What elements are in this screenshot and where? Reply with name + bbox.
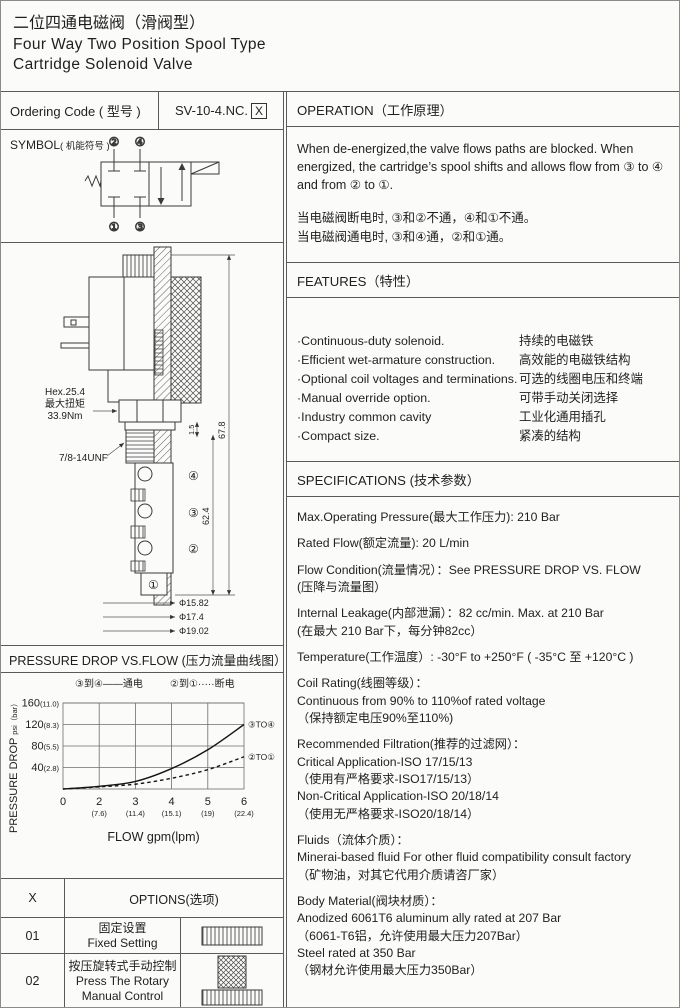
x-tick-lpm-label: (7.6) xyxy=(91,809,107,818)
page-title-en-line1: Four Way Two Position Spool Type xyxy=(13,35,679,55)
option-icon-cell-01 xyxy=(181,918,283,953)
option-code-01: 01 xyxy=(1,918,65,953)
drawing-port-2: ② xyxy=(188,542,199,556)
feature-text-en: ·Compact size. xyxy=(297,427,519,446)
dim-body-height: 62.4 xyxy=(201,507,211,525)
legend-entry: ③到④——通电 xyxy=(75,677,143,690)
x-tick-lpm-label: (11.4) xyxy=(126,809,146,818)
symbol-section: SYMBOL( 机能符号 ) ② ④ xyxy=(1,130,283,243)
spec-item: Coil Rating(线圈等级）： Continuous from 90% t… xyxy=(297,675,671,727)
symbol-port-3: ③ xyxy=(135,220,146,234)
feature-item: ·Optional coil voltages and terminations… xyxy=(297,370,669,389)
x-tick-label: 4 xyxy=(169,796,175,808)
feature-item: ·Manual override option. 可带手动关闭选择 xyxy=(297,389,669,408)
return-spring-icon xyxy=(85,176,101,186)
spec-item: Internal Leakage(内部泄漏）：82 cc/min. Max. a… xyxy=(297,605,671,640)
valve-cross-section-drawing: ④ ③ ② ① 67.8 1.5 xyxy=(1,243,284,645)
feature-text-en: ·Manual override option. xyxy=(297,389,519,408)
feature-text-en: ·Efficient wet-armature construction. xyxy=(297,351,519,370)
operation-header: OPERATION（工作原理） xyxy=(287,92,679,127)
feature-text-en: ·Continuous-duty solenoid. xyxy=(297,332,519,351)
ordering-code-label: Ordering Code ( 型号 ) xyxy=(1,92,159,129)
x-tick-label: 5 xyxy=(205,796,211,808)
hex-label-line2: 最大扭矩 xyxy=(45,397,85,410)
x-tick-lpm-label: (22.4) xyxy=(234,809,254,818)
spec-item: Body Material(阀块材质）： Anodized 6061T6 alu… xyxy=(297,893,671,980)
dim-dia-3: Φ19.02 xyxy=(179,626,209,636)
legend-entry: ②到①·····断电 xyxy=(170,677,235,690)
y-tick-label: 120(8.3) xyxy=(25,719,59,731)
symbol-port-1: ① xyxy=(109,220,120,234)
x-axis-title: FLOW gpm(lpm) xyxy=(107,830,199,844)
rotary-manual-knob-icon xyxy=(201,955,263,1007)
spec-item: Recommended Filtration(推荐的过滤网）： Critical… xyxy=(297,736,671,823)
feature-text-zh: 紧凑的结构 xyxy=(519,427,669,446)
ordering-code-value: SV-10-4.NC. X xyxy=(159,92,283,129)
curve-energized xyxy=(63,725,244,790)
x-tick-lpm-label: (19) xyxy=(201,809,215,818)
chart-title: PRESSURE DROP VS.FLOW (压力流量曲线图） xyxy=(1,645,283,673)
ordering-code-row: Ordering Code ( 型号 ) SV-10-4.NC. X xyxy=(1,92,283,130)
options-header-label: OPTIONS(选项) xyxy=(65,879,283,917)
option-row-01: 01 固定设置 Fixed Setting xyxy=(1,918,283,954)
x-tick-lpm-label: (15.1) xyxy=(162,809,182,818)
thread-label: 7/8-14UNF xyxy=(59,453,108,464)
drawing-port-1: ① xyxy=(148,578,159,592)
ordering-code-suffix-box: X xyxy=(251,103,267,119)
dim-dia-1: Φ15.82 xyxy=(179,598,209,608)
option-code-02: 02 xyxy=(1,954,65,1008)
option-label-02: 按压旋转式手动控制 Press The Rotary Manual Contro… xyxy=(65,954,181,1008)
operation-text-zh: 当电磁阀断电时, ③和②不通，④和①不通。 当电磁阀通电时, ③和④通，②和①通… xyxy=(297,209,669,247)
options-header-x: X xyxy=(1,879,65,917)
feature-text-zh: 工业化通用插孔 xyxy=(519,408,669,427)
chart-section: 40(2.8)80(5.5)120(8.3)160(11.0)02(7.6)3(… xyxy=(1,673,283,878)
feature-text-zh: 持续的电磁铁 xyxy=(519,332,669,351)
symbol-port-2: ② xyxy=(109,135,120,149)
dim-dia-2: Φ17.4 xyxy=(179,612,204,622)
option-row-02: 02 按压旋转式手动控制 Press The Rotary Manual Con… xyxy=(1,954,283,1008)
x-tick-label: 2 xyxy=(96,796,102,808)
features-header: FEATURES（特性） xyxy=(287,263,679,298)
dim-gap: 1.5 xyxy=(187,425,196,435)
curve-de-energized xyxy=(63,757,244,789)
page-title-en-line2: Cartridge Solenoid Valve xyxy=(13,55,679,75)
symbol-port-4: ④ xyxy=(135,135,146,149)
valve-body-graphics: ④ ③ ② ① xyxy=(61,247,201,605)
spec-item: Rated Flow(额定流量): 20 L/min xyxy=(297,535,671,552)
feature-item: ·Continuous-duty solenoid. 持续的电磁铁 xyxy=(297,332,669,351)
spec-item: Fluids（流体介质）： Minerai-based fluid For ot… xyxy=(297,832,671,884)
feature-text-zh: 高效能的电磁铁结构 xyxy=(519,351,669,370)
options-header-row: X OPTIONS(选项) xyxy=(1,879,283,918)
fixed-setting-knurl-icon xyxy=(201,926,263,946)
feature-text-zh: 可选的线圈电压和终端 xyxy=(519,370,669,389)
feature-item: ·Compact size. 紧凑的结构 xyxy=(297,427,669,446)
y-axis-title: PRESSURE DROP psi（bar） xyxy=(8,699,20,833)
x-tick-label: 3 xyxy=(132,796,138,808)
specifications-list: Max.Operating Pressure(最大工作压力): 210 BarR… xyxy=(287,497,679,1008)
pressure-drop-chart: 40(2.8)80(5.5)120(8.3)160(11.0)02(7.6)3(… xyxy=(1,673,284,878)
solenoid-actuator-icon xyxy=(191,162,219,174)
spec-item: Max.Operating Pressure(最大工作压力): 210 Bar xyxy=(297,509,671,526)
operation-text-en: When de-energized,the valve flows paths … xyxy=(297,140,669,194)
option-icon-cell-02 xyxy=(181,954,283,1008)
option-label-01: 固定设置 Fixed Setting xyxy=(65,918,181,953)
x-tick-label: 0 xyxy=(60,796,66,808)
spec-item: Temperature(工作温度）: -30°F to +250°F ( -35… xyxy=(297,649,671,666)
page-title-zh: 二位四通电磁阀（滑阀型） xyxy=(13,13,679,35)
operation-body: When de-energized,the valve flows paths … xyxy=(287,127,679,263)
feature-text-en: ·Industry common cavity xyxy=(297,408,519,427)
specifications-header: SPECIFICATIONS (技术参数） xyxy=(287,462,679,497)
right-column: OPERATION（工作原理） When de-energized,the va… xyxy=(286,92,679,1008)
feature-text-en: ·Optional coil voltages and terminations… xyxy=(297,370,519,389)
curve-end-label: ②TO① xyxy=(248,752,275,762)
y-tick-label: 40(2.8) xyxy=(31,762,59,774)
feature-text-zh: 可带手动关闭选择 xyxy=(519,389,669,408)
options-table: X OPTIONS(选项) 01 固定设置 Fixed Setting xyxy=(1,878,283,1008)
feature-item: ·Efficient wet-armature construction. 高效… xyxy=(297,351,669,370)
features-list: ·Continuous-duty solenoid. 持续的电磁铁 ·Effic… xyxy=(287,298,679,462)
curve-end-label: ③TO④ xyxy=(248,720,275,730)
title-block: 二位四通电磁阀（滑阀型） Four Way Two Position Spool… xyxy=(1,1,679,92)
drawing-port-3: ③ xyxy=(188,506,199,520)
dim-total-height: 67.8 xyxy=(217,421,227,439)
drawing-section: ④ ③ ② ① 67.8 1.5 xyxy=(1,243,283,645)
hex-label-line1: Hex.25.4 xyxy=(45,387,85,398)
hex-label-line3: 33.9Nm xyxy=(47,411,82,422)
ordering-code-text: SV-10-4.NC. xyxy=(175,103,248,118)
feature-item: ·Industry common cavity 工业化通用插孔 xyxy=(297,408,669,427)
left-column: Ordering Code ( 型号 ) SV-10-4.NC. X SYMBO… xyxy=(1,92,284,1008)
y-tick-label: 80(5.5) xyxy=(31,741,59,753)
drawing-port-4: ④ xyxy=(188,469,199,483)
y-tick-label: 160(11.0) xyxy=(22,698,60,710)
spec-item: Flow Condition(流量情况）：See PRESSURE DROP V… xyxy=(297,562,671,597)
symbol-label: SYMBOL( 机能符号 ) xyxy=(10,138,110,152)
x-tick-label: 6 xyxy=(241,796,247,808)
datasheet-page: 二位四通电磁阀（滑阀型） Four Way Two Position Spool… xyxy=(0,0,680,1008)
